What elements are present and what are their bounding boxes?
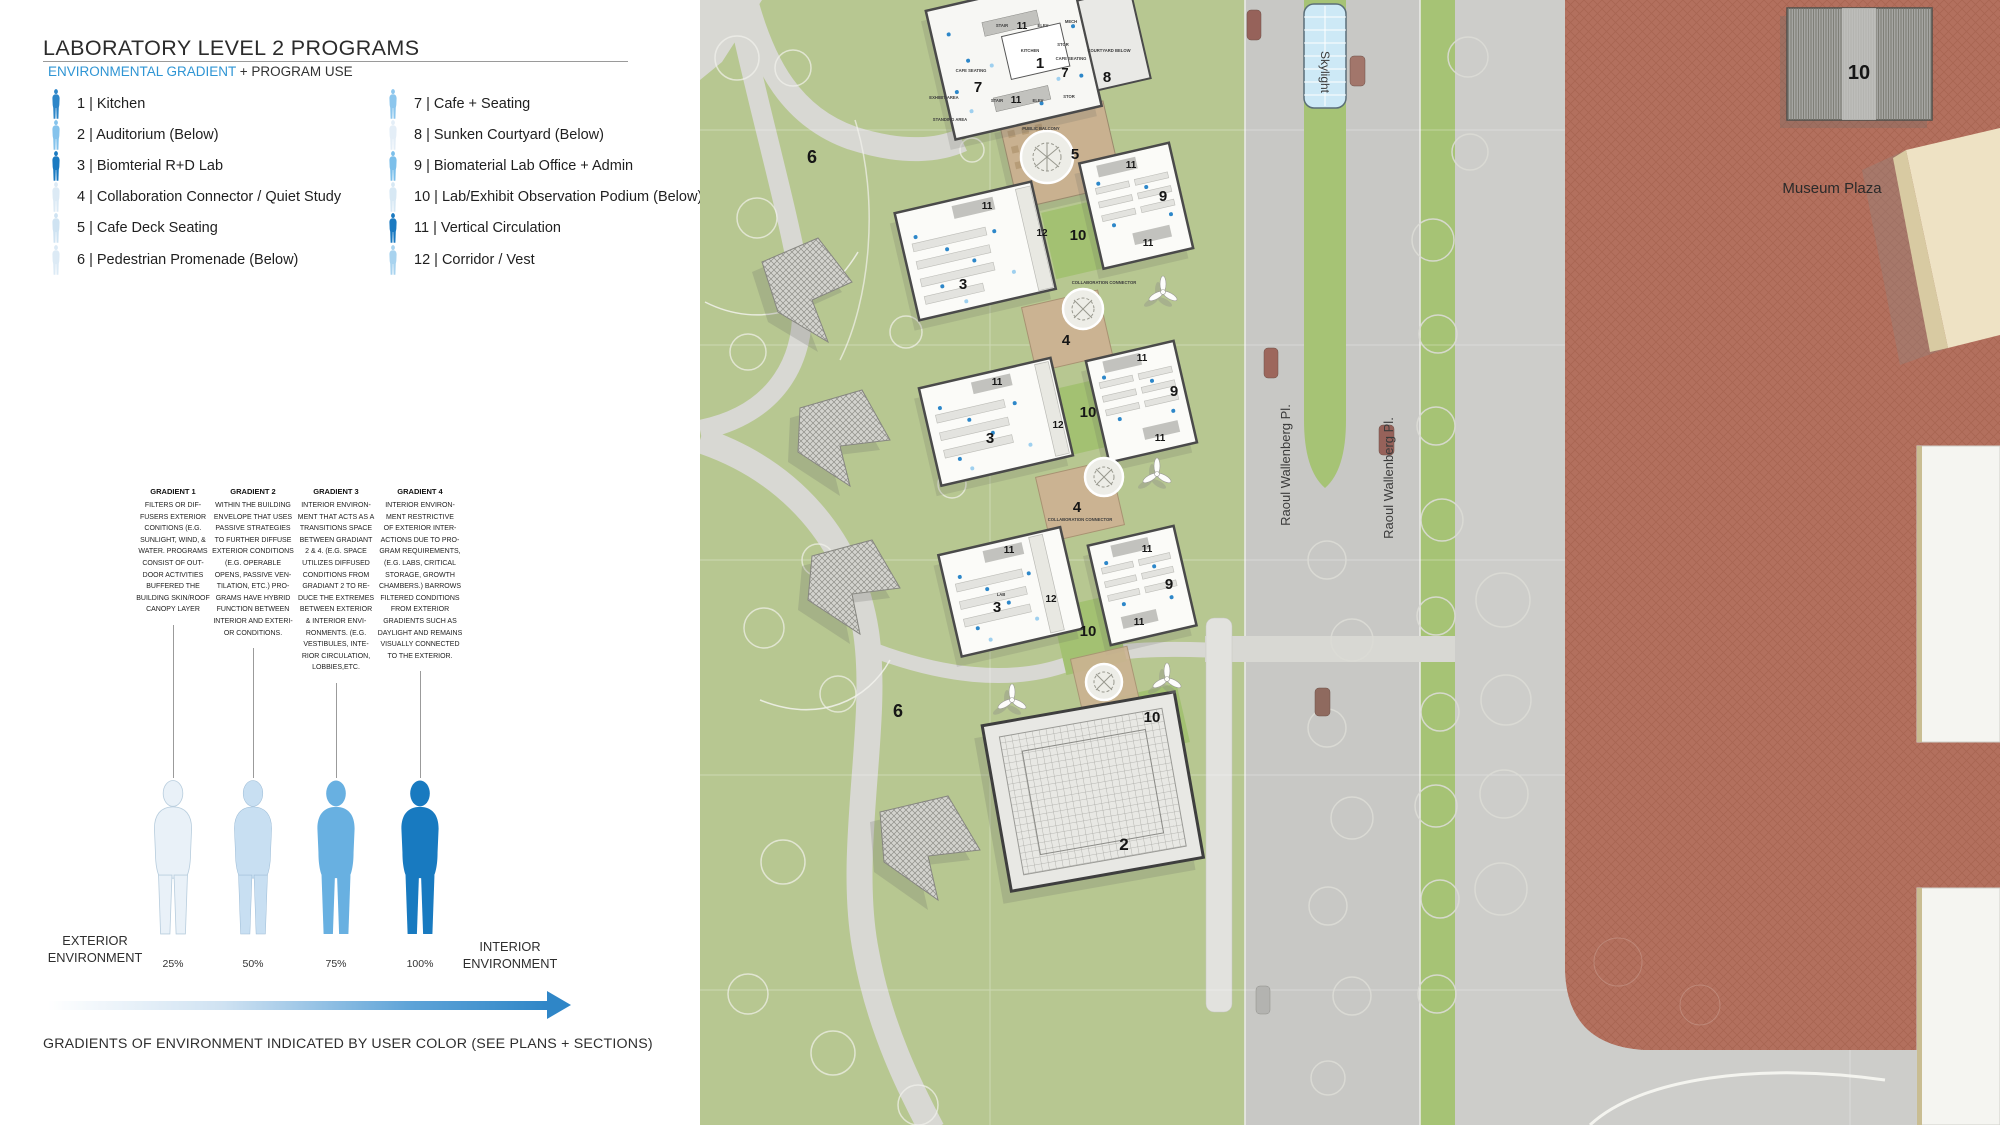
gradient-1-person-figure (142, 780, 204, 935)
museum-plaza-label: Museum Plaza (1782, 180, 1882, 197)
room-label-collaboration-connector: COLLABORATION CONNECTOR (1048, 517, 1113, 522)
gradient-3-body: INTERIOR ENVIRON- MENT THAT ACTS AS A TR… (288, 500, 384, 674)
room-label-exhibit-area: EXHIBIT AREA (929, 95, 958, 100)
room-label-stor: STOR (1063, 94, 1075, 99)
legend-item-label: 8 | Sunken Courtyard (Below) (401, 127, 604, 143)
plan-number-11: 11 (1126, 160, 1137, 171)
room-label-standing-area: STANDING AREA (933, 117, 967, 122)
legend-item-label: 4 | Collaboration Connector / Quiet Stud… (64, 189, 341, 205)
exterior-environment-label: EXTERIOR ENVIRONMENT (35, 932, 155, 966)
plan-number-11: 11 (1142, 544, 1153, 555)
plan-number-11: 11 (992, 377, 1003, 388)
subtitle-rest: + PROGRAM USE (236, 64, 353, 79)
plan-number-11: 11 (982, 201, 993, 212)
white-building-upper (1917, 446, 2000, 742)
legend-item-label: 3 | Biomterial R+D Lab (64, 158, 223, 174)
museum-plaza-area (1565, 0, 2000, 1125)
leader-line-gradient-4 (420, 671, 421, 778)
street-label-raoul-wallenberg-2: Raoul Wallenberg Pl. (1381, 417, 1396, 539)
legend-item-2-auditorium: 2 | Auditorium (Below) (48, 119, 341, 150)
plan-number-12-corridor: 12 (1036, 228, 1048, 239)
gradient-2-title: GRADIENT 2 (205, 487, 301, 496)
plan-number-10-podium: 10 (1144, 709, 1161, 726)
arrow-head (547, 991, 571, 1019)
room-label-stair: STAIR (991, 98, 1003, 103)
legend-item-label: 10 | Lab/Exhibit Observation Podium (Bel… (401, 189, 702, 205)
white-building-lower (1917, 888, 2000, 1125)
room-label-kitchen: KITCHEN (1021, 48, 1040, 53)
person-figure-icon (385, 182, 401, 212)
room-label-public-balcony: PUBLIC BALCONY (1022, 126, 1060, 131)
plan-number-6-promenade: 6 (807, 147, 817, 167)
percent-label-100: 100% (389, 958, 451, 970)
gradient-2-body: WITHIN THE BUILDING ENVELOPE THAT USES P… (205, 500, 301, 639)
legend-item-label: 1 | Kitchen (64, 96, 145, 112)
gradient-4-description: GRADIENT 4 INTERIOR ENVIRON- MENT RESTRI… (372, 487, 468, 662)
room-label-collaboration-connector: COLLABORATION CONNECTOR (1072, 280, 1137, 285)
plan-number-2-auditorium: 2 (1119, 835, 1128, 854)
room-label-lab: LAB (997, 592, 1006, 597)
person-figure-icon (48, 151, 64, 181)
legend-item-6-promenade: 6 | Pedestrian Promenade (Below) (48, 244, 341, 275)
room-label-stor: STOR (1057, 42, 1069, 47)
legend-item-1-kitchen: 1 | Kitchen (48, 88, 341, 119)
plan-number-4-connector: 4 (1073, 499, 1082, 516)
legend-item-7-cafe-seating: 7 | Cafe + Seating (385, 88, 702, 119)
legend-item-3-biomaterial-lab: 3 | Biomterial R+D Lab (48, 150, 341, 181)
person-figure-icon (385, 213, 401, 243)
plan-number-4-connector: 4 (1062, 332, 1071, 349)
bottom-caption: GRADIENTS OF ENVIRONMENT INDICATED BY US… (43, 1036, 653, 1052)
page-title: LABORATORY LEVEL 2 PROGRAMS (43, 36, 419, 61)
plan-number-11: 11 (1134, 617, 1145, 628)
plan-number-7: 7 (974, 79, 982, 96)
leader-line-gradient-2 (253, 648, 254, 778)
plan-number-3-lab: 3 (993, 599, 1001, 616)
percent-label-75: 75% (305, 958, 367, 970)
plan-number-8-courtyard: 8 (1103, 69, 1111, 86)
plan-number-10-podium: 10 (1080, 404, 1097, 421)
room-label-elev: ELEV (1033, 98, 1044, 103)
plan-number-10-museum-podium: 10 (1848, 62, 1870, 84)
plan-number-11: 11 (1143, 238, 1154, 249)
legend-item-label: 12 | Corridor / Vest (401, 252, 535, 268)
street-label-raoul-wallenberg-1: Raoul Wallenberg Pl. (1278, 404, 1293, 526)
person-figure-icon (385, 245, 401, 275)
room-label-courtyard-below: COURTYARD BELOW (1087, 48, 1130, 53)
percent-label-50: 50% (222, 958, 284, 970)
plan-number-3-lab: 3 (986, 430, 994, 447)
legend-item-11-vertical-circulation: 11 | Vertical Circulation (385, 213, 702, 244)
plan-number-10-podium: 10 (1080, 623, 1097, 640)
legend-item-label: 2 | Auditorium (Below) (64, 127, 219, 143)
room-label-cafe-seating: CAFE SEATING (1056, 56, 1087, 61)
legend-item-9-lab-office: 9 | Biomaterial Lab Office + Admin (385, 150, 702, 181)
plan-number-5-cafe-deck: 5 (1071, 146, 1079, 163)
person-figure-icon (385, 89, 401, 119)
person-figure-icon (48, 213, 64, 243)
gradient-4-body: INTERIOR ENVIRON- MENT RESTRICTIVE OF EX… (372, 500, 468, 662)
gradient-2-description: GRADIENT 2 WITHIN THE BUILDING ENVELOPE … (205, 487, 301, 639)
plan-number-3-lab: 3 (959, 276, 967, 293)
gradient-4-person-figure (389, 780, 451, 935)
gradient-2-person-figure (222, 780, 284, 935)
person-figure-icon (48, 182, 64, 212)
person-figure-icon (385, 151, 401, 181)
gradient-4-title: GRADIENT 4 (372, 487, 468, 496)
plan-number-11: 11 (1155, 433, 1166, 444)
person-figure-icon (48, 120, 64, 150)
legend-item-4-collab-connector: 4 | Collaboration Connector / Quiet Stud… (48, 182, 341, 213)
building-2-auditorium (972, 692, 1205, 904)
room-label-cafe-seating: CAFE SEATING (956, 68, 987, 73)
interior-environment-label: INTERIOR ENVIRONMENT (450, 938, 570, 972)
subtitle-highlight: ENVIRONMENTAL GRADIENT (48, 64, 236, 79)
program-legend-panel: LABORATORY LEVEL 2 PROGRAMS ENVIRONMENTA… (0, 0, 700, 1125)
leader-line-gradient-1 (173, 625, 174, 778)
subtitle: ENVIRONMENTAL GRADIENT + PROGRAM USE (48, 64, 353, 79)
person-figure-icon (48, 89, 64, 119)
room-label-stair: STAIR (996, 23, 1008, 28)
legend-item-label: 7 | Cafe + Seating (401, 96, 530, 112)
person-figure-icon (48, 245, 64, 275)
legend-item-label: 5 | Cafe Deck Seating (64, 220, 218, 236)
legend-item-label: 9 | Biomaterial Lab Office + Admin (401, 158, 633, 174)
title-divider (43, 61, 628, 62)
plan-number-12-corridor: 12 (1052, 420, 1064, 431)
legend-item-5-cafe-deck: 5 | Cafe Deck Seating (48, 213, 341, 244)
environment-gradient-arrow (48, 1001, 548, 1010)
plan-number-9-office: 9 (1170, 383, 1178, 400)
leader-line-gradient-3 (336, 683, 337, 778)
plan-number-11: 11 (1004, 545, 1015, 556)
skylight-label: Skylight (1318, 51, 1332, 94)
plan-number-6-promenade: 6 (893, 701, 903, 721)
legend-item-8-sunken-courtyard: 8 | Sunken Courtyard (Below) (385, 119, 702, 150)
plan-number-11: 11 (1011, 95, 1022, 106)
plan-number-12-corridor: 12 (1045, 594, 1057, 605)
plan-number-10-podium: 10 (1070, 227, 1087, 244)
gradient-3-title: GRADIENT 3 (288, 487, 384, 496)
plan-number-11: 11 (1017, 21, 1028, 32)
plan-number-9-office: 9 (1159, 188, 1167, 205)
plan-number-7: 7 (1061, 65, 1068, 80)
gradient-3-person-figure (305, 780, 367, 935)
legend-item-label: 6 | Pedestrian Promenade (Below) (64, 252, 298, 268)
plan-number-9-office: 9 (1165, 576, 1173, 593)
plan-number-11: 11 (1137, 353, 1148, 364)
room-label-mech: MECH (1065, 19, 1077, 24)
room-label-elev: ELEV (1038, 23, 1049, 28)
gradient-3-description: GRADIENT 3 INTERIOR ENVIRON- MENT THAT A… (288, 487, 384, 674)
person-figure-icon (385, 120, 401, 150)
legend-item-12-corridor: 12 | Corridor / Vest (385, 244, 702, 275)
legend-item-10-observation-podium: 10 | Lab/Exhibit Observation Podium (Bel… (385, 182, 702, 213)
legend-item-label: 11 | Vertical Circulation (401, 220, 561, 236)
legend-column-1: 1 | Kitchen 2 | Auditorium (Below) 3 | B… (48, 88, 341, 275)
legend-column-2: 7 | Cafe + Seating 8 | Sunken Courtyard … (385, 88, 702, 275)
plan-number-1-kitchen: 1 (1036, 55, 1044, 72)
site-plan-drawing: 6 11 7 1 7 8 11 5 11 9 11 11 12 3 10 4 1… (700, 0, 2000, 1125)
